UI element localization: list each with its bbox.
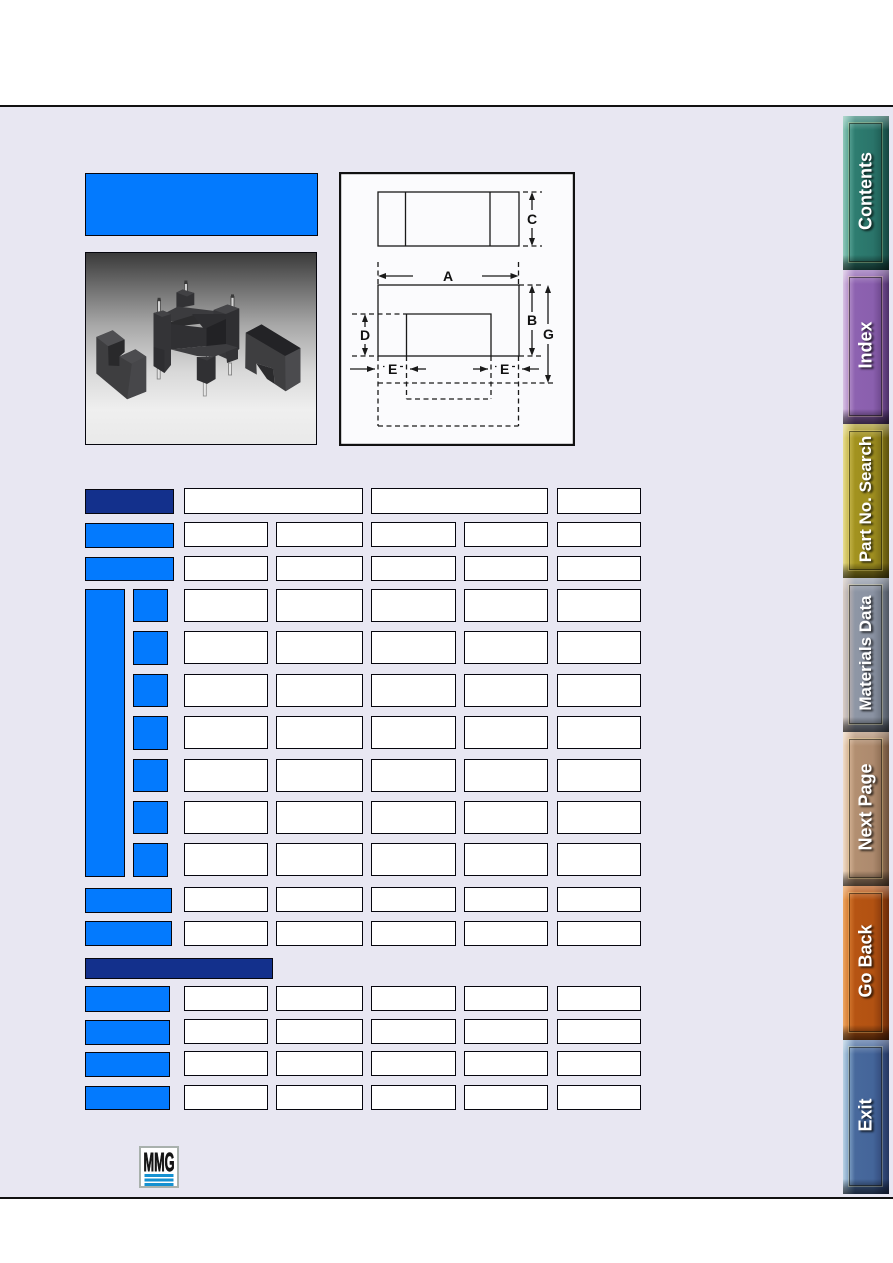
svg-text:MMG: MMG — [143, 1148, 174, 1177]
svg-text:A: A — [443, 268, 453, 284]
svg-text:D: D — [360, 327, 370, 343]
svg-text:C: C — [527, 211, 537, 227]
svg-text:E: E — [500, 361, 509, 377]
svg-text:E: E — [388, 361, 397, 377]
svg-text:B: B — [527, 312, 537, 328]
svg-text:G: G — [543, 326, 554, 342]
